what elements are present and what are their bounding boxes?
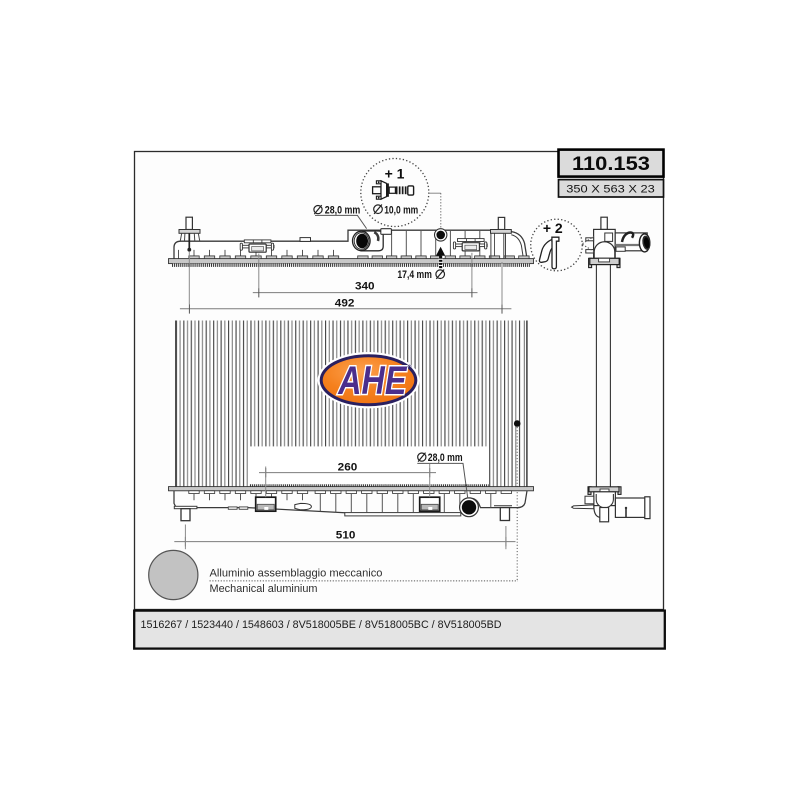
svg-text:340: 340 [355, 280, 375, 292]
svg-text:Mechanical aluminium: Mechanical aluminium [210, 583, 318, 595]
svg-text:510: 510 [336, 529, 356, 541]
svg-text:260: 260 [338, 461, 358, 473]
svg-text:AHE: AHE [337, 359, 407, 403]
svg-text:350 X 563 X 23: 350 X 563 X 23 [566, 183, 655, 195]
svg-text:1516267 / 1523440 / 1548603 /: 1516267 / 1523440 / 1548603 / 8V518005BE… [141, 619, 502, 631]
svg-text:10,0 mm: 10,0 mm [384, 204, 418, 216]
svg-text:Alluminio assemblaggio meccani: Alluminio assemblaggio meccanico [210, 568, 383, 580]
svg-text:28,0 mm: 28,0 mm [428, 452, 463, 464]
svg-text:110.153: 110.153 [572, 153, 650, 175]
svg-text:+ 2: + 2 [543, 220, 563, 236]
svg-text:®: ® [408, 364, 412, 371]
svg-text:492: 492 [335, 297, 355, 309]
svg-text:+ 1: + 1 [385, 166, 405, 182]
svg-text:28,0 mm: 28,0 mm [325, 204, 361, 216]
svg-text:17,4 mm: 17,4 mm [397, 269, 432, 281]
